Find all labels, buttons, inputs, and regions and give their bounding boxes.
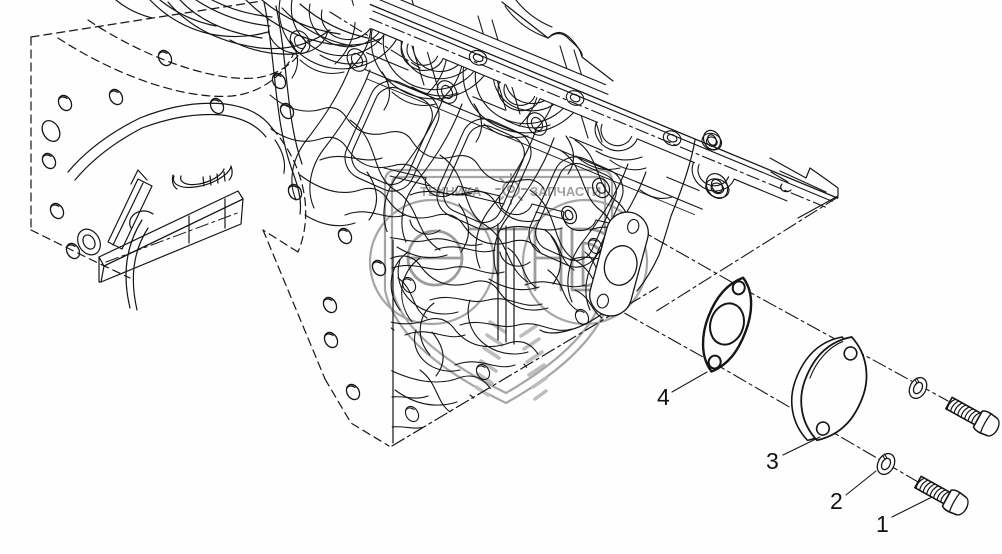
svg-text:3: 3 [766, 448, 779, 474]
svg-text:4: 4 [657, 384, 670, 410]
svg-text:1: 1 [876, 511, 889, 537]
svg-text:ЗАПЧАСТИ: ЗАПЧАСТИ [530, 184, 601, 199]
svg-text:2: 2 [830, 488, 843, 514]
